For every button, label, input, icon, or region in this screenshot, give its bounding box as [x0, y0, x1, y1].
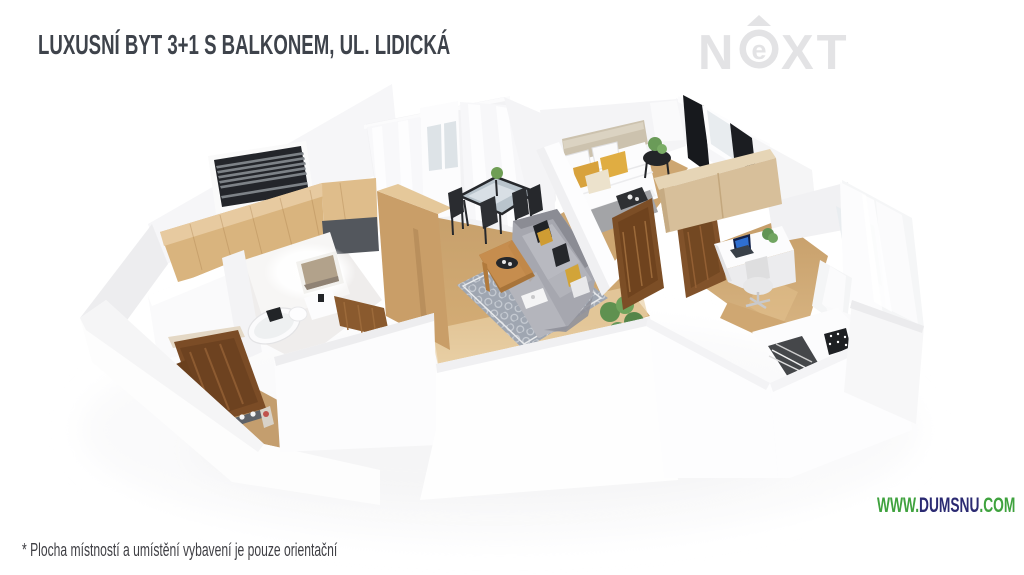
svg-text:e: e: [752, 35, 767, 65]
svg-text:XT: XT: [781, 26, 850, 80]
svg-text:N: N: [698, 26, 733, 80]
